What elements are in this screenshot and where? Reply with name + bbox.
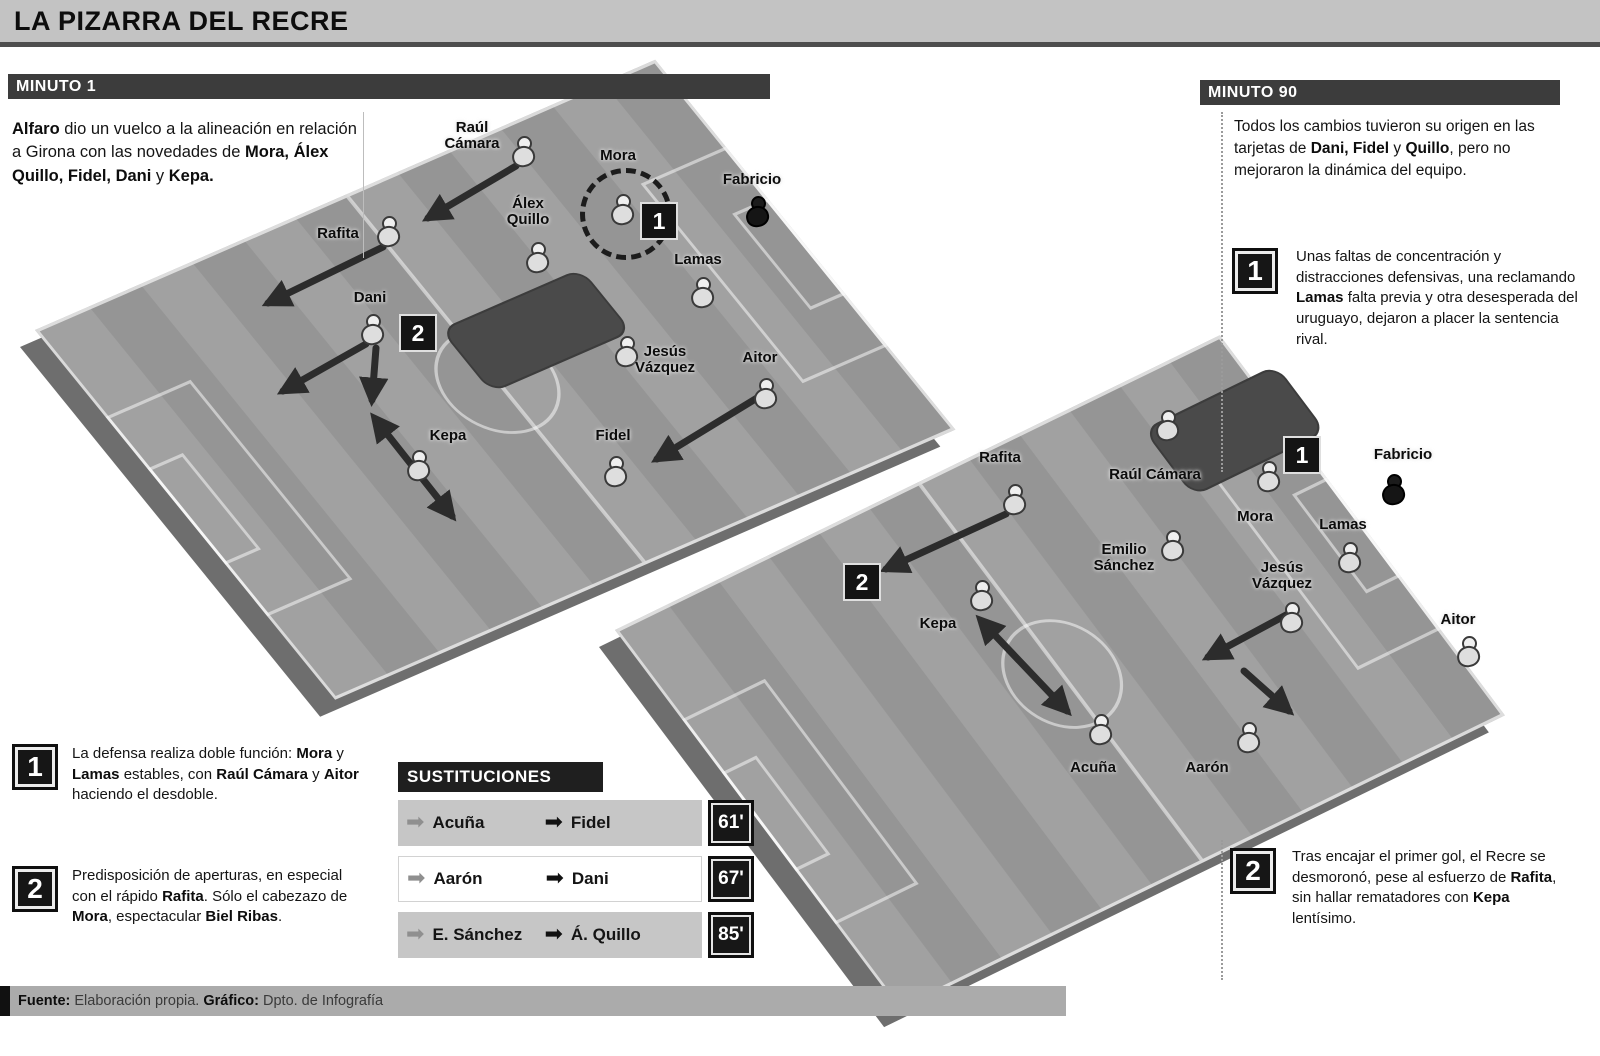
minute-90-note-1: Unas faltas de concentración y distracci…: [1296, 247, 1578, 350]
substitutions-header: SUSTITUCIONES: [398, 762, 603, 792]
section-header-minute-90: MINUTO 90: [1200, 80, 1560, 105]
text-segment: Tras encajar el primer gol, el Recre se …: [1292, 848, 1546, 886]
substitution-row: ➡E. Sánchez➡Á. Quillo85': [398, 912, 758, 958]
center-circle: [977, 601, 1148, 747]
player-in-arrow-icon: ➡: [544, 924, 562, 946]
player-torso: [1380, 482, 1407, 508]
text-segment: lentísimo.: [1292, 910, 1356, 927]
player-label-line: Fabricio: [1374, 447, 1432, 463]
text-segment: haciendo el desdoble.: [72, 786, 218, 803]
text-segment: Dani, Fidel: [1311, 140, 1389, 157]
text-segment: y: [1389, 140, 1405, 157]
text-segment: .: [278, 908, 282, 925]
column-rule: [363, 112, 364, 258]
text-segment: Elaboración propia.: [74, 993, 203, 1009]
substitution-row: ➡Aarón➡Dani67': [398, 856, 758, 902]
player-in-arrow-icon: ➡: [544, 812, 562, 834]
player-in-name: Fidel: [571, 813, 611, 833]
player-out-name: Aarón: [433, 869, 545, 889]
player-out-name: Acuña: [432, 813, 544, 833]
note-badge-1: 1: [12, 744, 58, 790]
title-bar: LA PIZARRA DEL RECRE: [0, 0, 1600, 42]
substitution-row-inner: ➡E. Sánchez➡Á. Quillo: [398, 912, 702, 958]
player-label-aitor: Aitor: [1441, 612, 1476, 628]
substitution-row: ➡Acuña➡Fidel61': [398, 800, 758, 846]
player-out-arrow-icon: ➡: [406, 924, 424, 946]
minute-badge: 67': [708, 856, 754, 902]
text-segment: , espectacular: [108, 908, 206, 925]
player-label-fabricio: Fabricio: [1374, 447, 1432, 463]
text-segment: Mora: [72, 908, 108, 925]
source-line: Fuente: Elaboración propia. Gráfico: Dpt…: [0, 986, 1066, 1016]
player-in-arrow-icon: ➡: [545, 868, 563, 890]
player-label-line: Aitor: [1441, 612, 1476, 628]
infographic-root: LA PIZARRA DEL RECRE RaúlCáma: [0, 0, 1600, 1056]
source-bar: Fuente: Elaboración propia. Gráfico: Dpt…: [0, 986, 1066, 1016]
text-segment: Lamas: [72, 766, 120, 783]
minute-1-intro: Alfaro dio un vuelco a la alineación en …: [12, 118, 360, 188]
title-underline: [0, 42, 1600, 47]
minute-90-note-2: Tras encajar el primer gol, el Recre se …: [1292, 847, 1570, 930]
text-segment: Kepa.: [169, 167, 214, 185]
page-title: LA PIZARRA DEL RECRE: [0, 0, 1600, 37]
text-segment: La defensa realiza doble función:: [72, 745, 296, 762]
text-segment: Rafita: [1510, 869, 1552, 886]
player-out-arrow-icon: ➡: [407, 868, 425, 890]
text-segment: y: [151, 167, 168, 185]
text-segment: Raúl Cámara: [216, 766, 308, 783]
text-segment: Rafita: [162, 888, 204, 905]
minute-badge: 61': [708, 800, 754, 846]
minute-1-note-1: La defensa realiza doble función: Mora y…: [72, 744, 364, 806]
text-segment: Fuente:: [18, 993, 74, 1009]
text-segment: y: [332, 745, 344, 762]
column-rule: [1221, 840, 1223, 980]
substitutions-box: SUSTITUCIONES ➡Acuña➡Fidel61'➡Aarón➡Dani…: [398, 762, 758, 968]
text-segment: . Sólo el cabezazo de: [204, 888, 347, 905]
text-segment: Gráfico:: [203, 993, 263, 1009]
player-out-name: E. Sánchez: [432, 925, 544, 945]
player-out-arrow-icon: ➡: [406, 812, 424, 834]
note-badge-1: 1: [1232, 248, 1278, 294]
player-in-name: Á. Quillo: [571, 925, 641, 945]
minute-badge: 85': [708, 912, 754, 958]
text-segment: y: [308, 766, 324, 783]
player-in-name: Dani: [572, 869, 609, 889]
player-head: [1462, 636, 1477, 651]
note-badge-2: 2: [12, 866, 58, 912]
penalty-box-right: [641, 147, 888, 384]
section-header-label: MINUTO 90: [1208, 84, 1298, 101]
text-segment: Lamas: [1296, 289, 1344, 306]
player-head: [1387, 474, 1402, 489]
source-bar-mark: [0, 986, 10, 1016]
minute-90-intro: Todos los cambios tuvieron su origen en …: [1234, 116, 1564, 182]
text-segment: Mora: [296, 745, 332, 762]
text-segment: Alfaro: [12, 120, 60, 138]
note-badge-2: 2: [1230, 848, 1276, 894]
text-segment: Biel Ribas: [205, 908, 278, 925]
text-segment: Unas faltas de concentración y distracci…: [1296, 248, 1575, 286]
section-header-label: MINUTO 1: [16, 78, 96, 95]
text-segment: Dpto. de Infografía: [263, 993, 383, 1009]
text-segment: Quillo: [1405, 140, 1449, 157]
substitution-row-inner: ➡Aarón➡Dani: [398, 856, 702, 902]
substitution-row-inner: ➡Acuña➡Fidel: [398, 800, 702, 846]
minute-1-note-2: Predisposición de aperturas, en especial…: [72, 866, 364, 928]
column-rule: [1221, 112, 1223, 472]
goalkeeper-icon-fabricio: [1380, 474, 1406, 506]
substitutions-rows: ➡Acuña➡Fidel61'➡Aarón➡Dani67'➡E. Sánchez…: [398, 800, 758, 958]
section-header-minute-1: MINUTO 1: [8, 74, 770, 99]
text-segment: Kepa: [1473, 889, 1510, 906]
text-segment: estables, con: [120, 766, 217, 783]
text-segment: Aitor: [324, 766, 359, 783]
